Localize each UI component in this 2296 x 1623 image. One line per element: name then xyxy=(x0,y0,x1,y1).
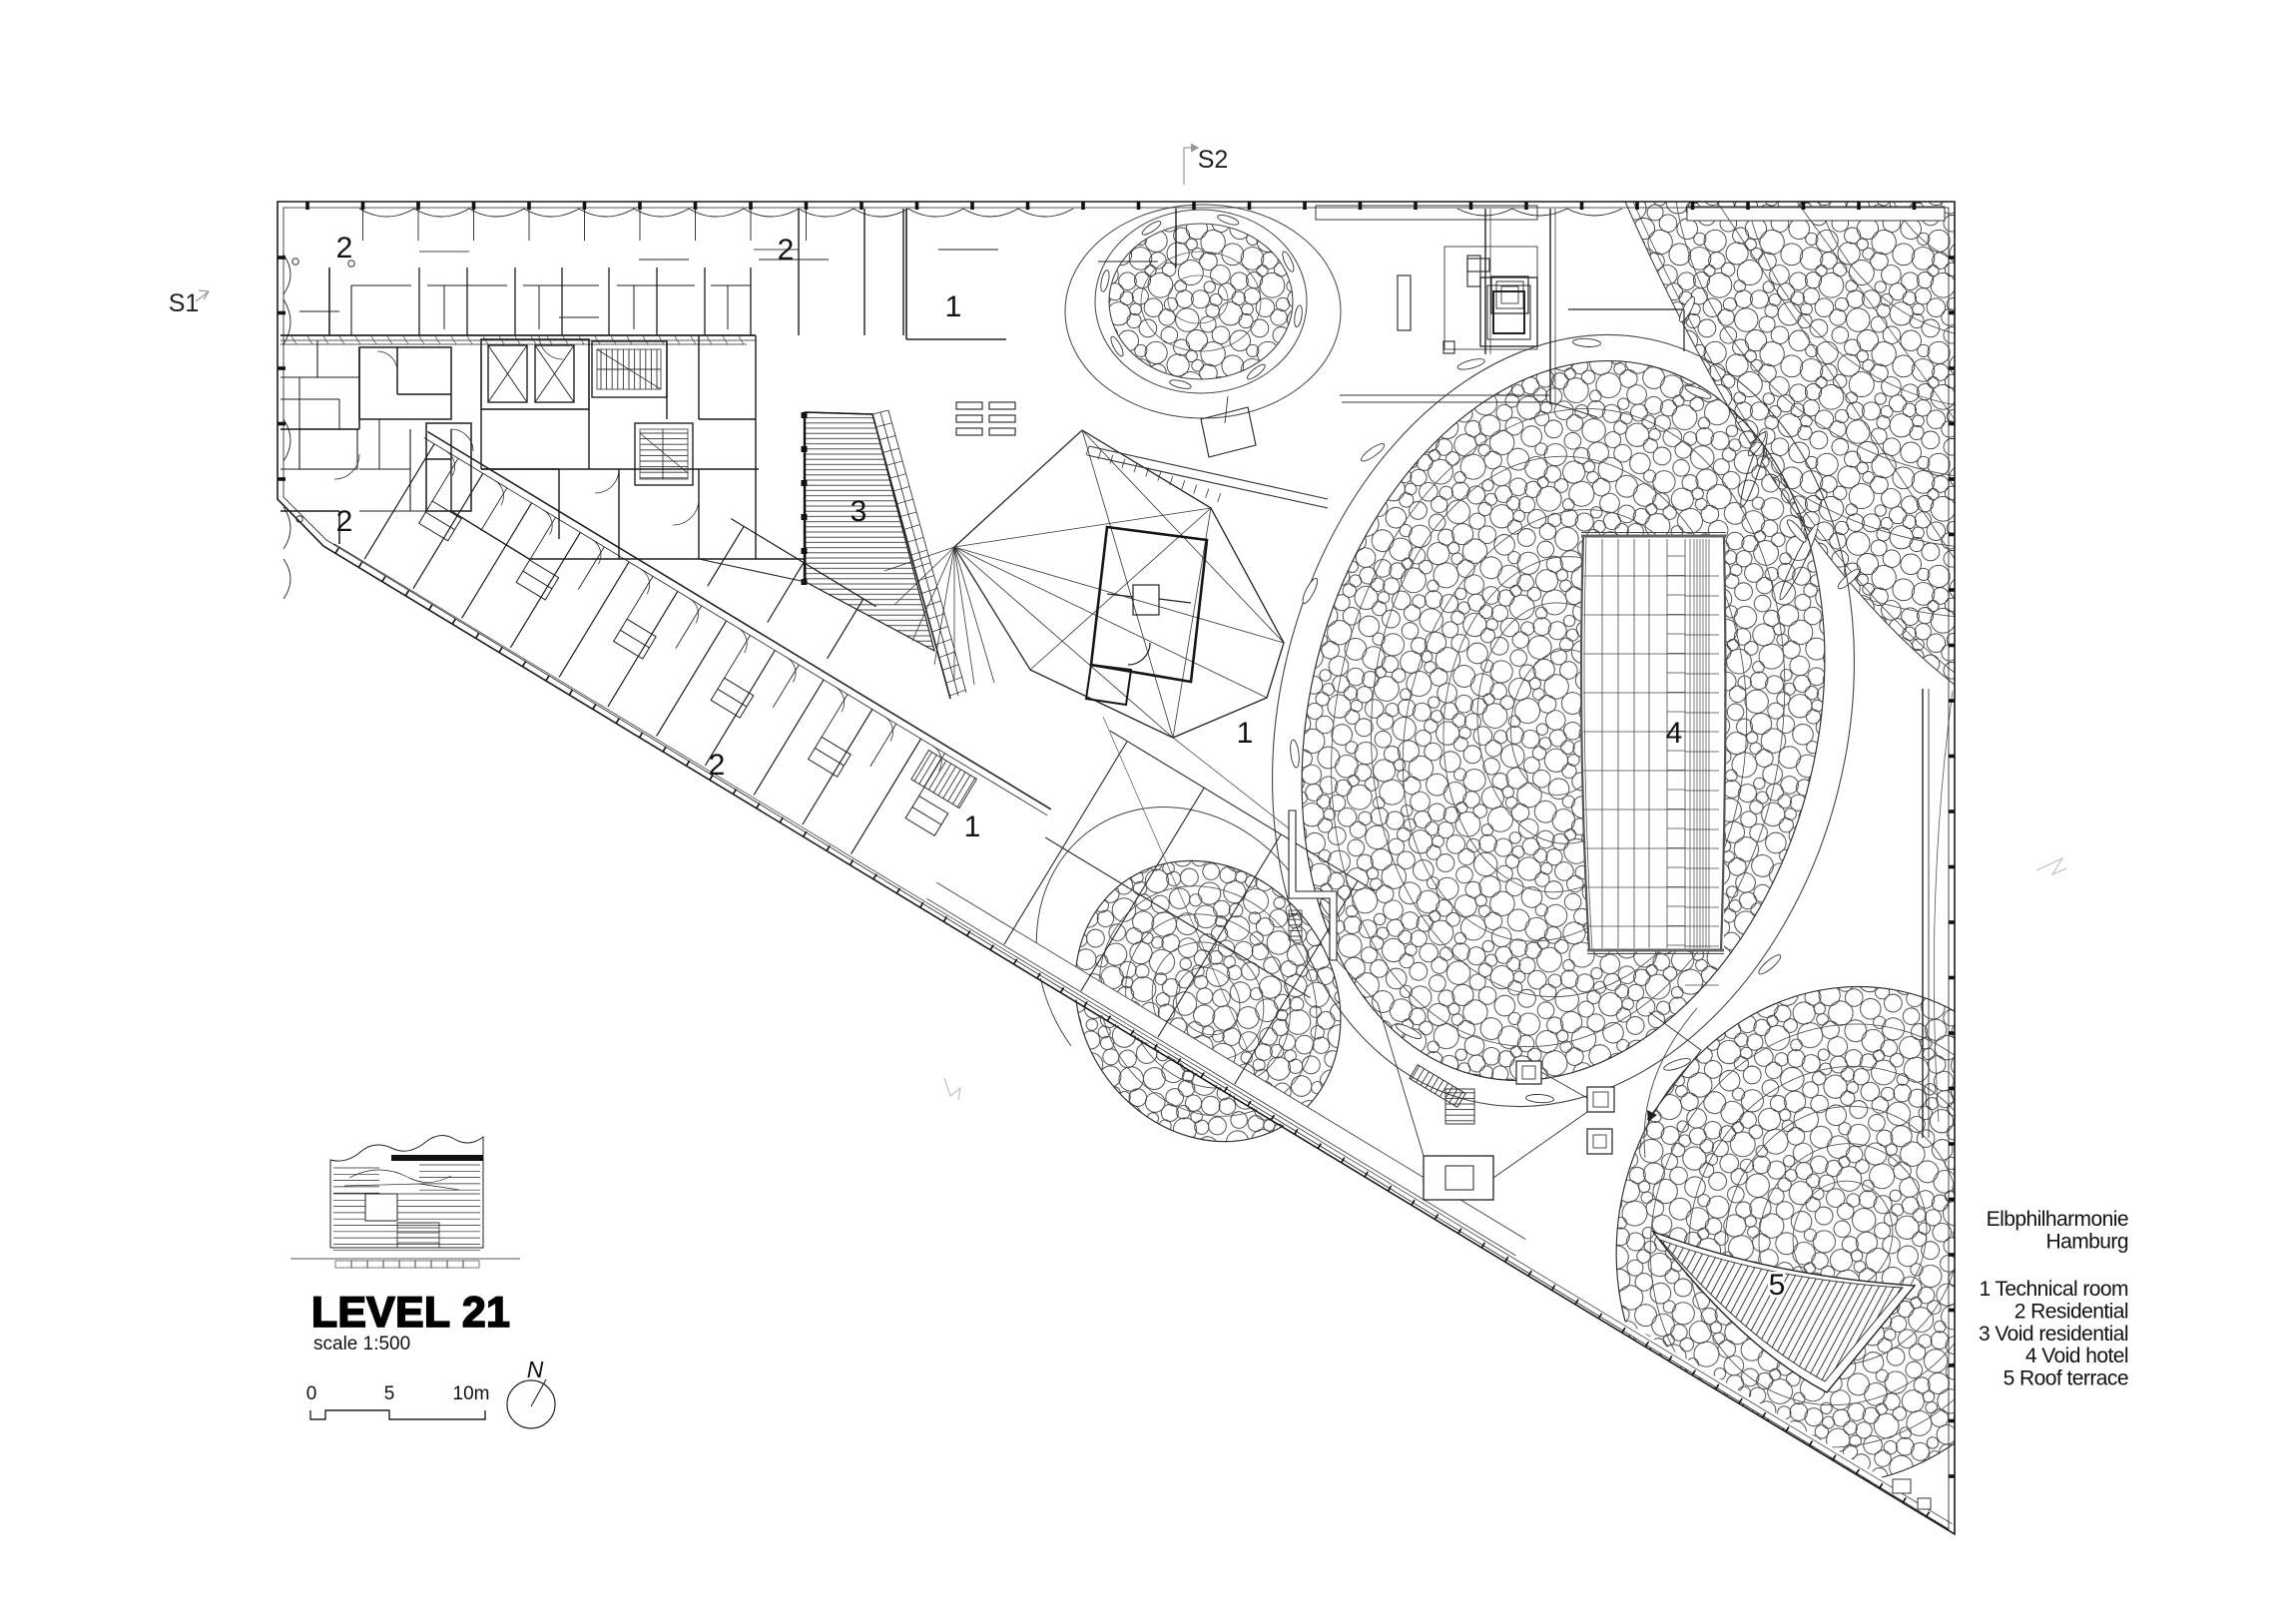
svg-text:S1: S1 xyxy=(169,289,200,317)
svg-text:1: 1 xyxy=(964,811,981,843)
svg-text:5: 5 xyxy=(1769,1269,1786,1302)
svg-text:Elbphilharmonie: Elbphilharmonie xyxy=(1987,1208,2128,1231)
svg-text:LEVEL 21: LEVEL 21 xyxy=(311,1290,510,1337)
svg-text:2 Residential: 2 Residential xyxy=(2014,1300,2128,1323)
svg-text:scale 1:500: scale 1:500 xyxy=(313,1334,410,1354)
svg-text:5: 5 xyxy=(384,1383,395,1404)
svg-text:2: 2 xyxy=(709,749,726,782)
svg-text:S2: S2 xyxy=(1198,146,1229,174)
svg-text:3 Void residential: 3 Void residential xyxy=(1979,1323,2128,1346)
svg-text:Hamburg: Hamburg xyxy=(2045,1230,2128,1253)
svg-text:5 Roof terrace: 5 Roof terrace xyxy=(2004,1367,2128,1390)
svg-text:1: 1 xyxy=(1237,717,1254,750)
svg-text:1: 1 xyxy=(945,290,962,323)
svg-text:2: 2 xyxy=(336,232,353,265)
svg-text:0: 0 xyxy=(306,1383,317,1404)
svg-text:2: 2 xyxy=(778,234,795,267)
svg-text:4: 4 xyxy=(1666,717,1683,750)
svg-text:2: 2 xyxy=(336,505,353,538)
svg-text:3: 3 xyxy=(851,495,867,528)
svg-text:4 Void hotel: 4 Void hotel xyxy=(2025,1345,2128,1367)
svg-text:10m: 10m xyxy=(453,1383,490,1404)
svg-text:1 Technical room: 1 Technical room xyxy=(1979,1278,2128,1301)
svg-text:N: N xyxy=(527,1356,544,1382)
